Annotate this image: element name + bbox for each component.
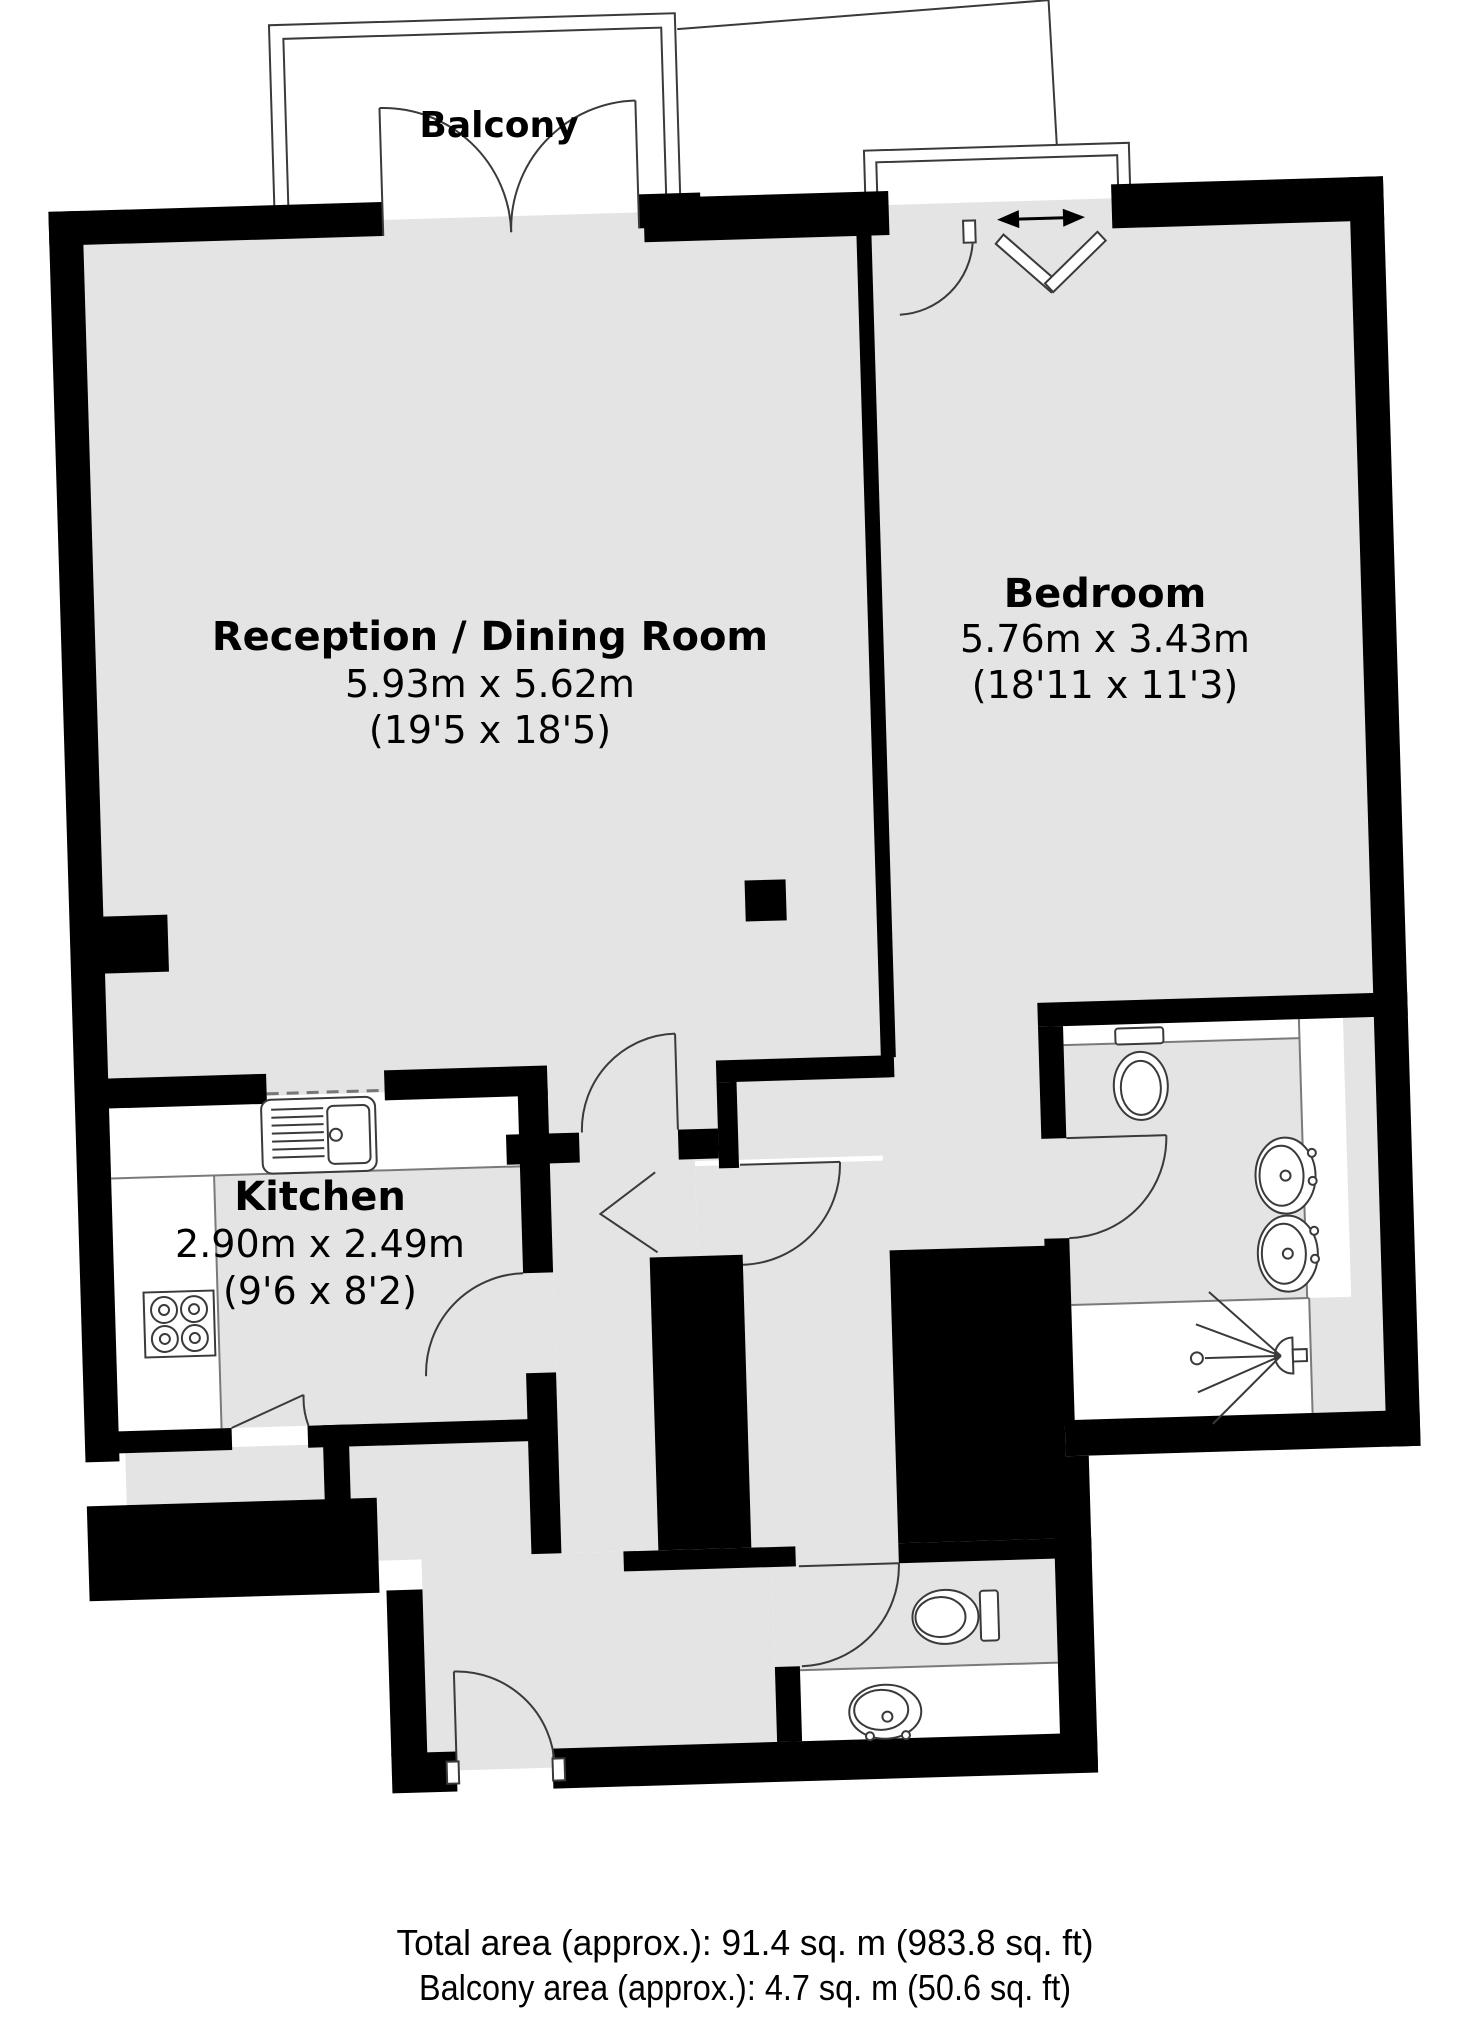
balcony-label: Balcony: [419, 105, 578, 146]
balcony-area-text: Balcony area (approx.): 4.7 sq. m (50.6 …: [419, 1967, 1071, 2008]
total-area-text: Total area (approx.): 91.4 sq. m (983.8 …: [397, 1922, 1094, 1963]
plan-geometry: [43, 0, 1430, 1802]
floor-plan-page: Balcony Reception / Dining Room 5.93m x …: [0, 0, 1463, 2025]
lobby-floor: [125, 1444, 327, 1505]
area-summary: Total area (approx.): 91.4 sq. m (983.8 …: [397, 1922, 1094, 2008]
ensuite-toilet-icon: [1112, 1027, 1169, 1121]
reception-metric: 5.93m x 5.62m: [345, 662, 635, 706]
wc-basin-area: [799, 1663, 1060, 1742]
hob-icon: [143, 1290, 215, 1357]
lower-corridor-floor: [421, 1547, 777, 1771]
bedroom-metric: 5.76m x 3.43m: [960, 617, 1250, 661]
kitchen-title: Kitchen: [234, 1174, 406, 1220]
reception-imperial: (19'5 x 18'5): [369, 708, 611, 752]
bedroom-imperial: (18'11 x 11'3): [972, 663, 1238, 707]
pillar: [745, 879, 787, 921]
kitchen-metric: 2.90m x 2.49m: [175, 1222, 465, 1266]
floor-plan-svg: Balcony Reception / Dining Room 5.93m x …: [0, 0, 1463, 2025]
left-wall-notch: [101, 915, 169, 974]
reception-title: Reception / Dining Room: [212, 614, 768, 660]
bedroom-title: Bedroom: [1004, 571, 1207, 617]
kitchen-imperial: (9'6 x 8'2): [223, 1269, 417, 1313]
kitchen-sink-icon: [261, 1097, 377, 1174]
wc-toilet-icon: [912, 1588, 1000, 1645]
